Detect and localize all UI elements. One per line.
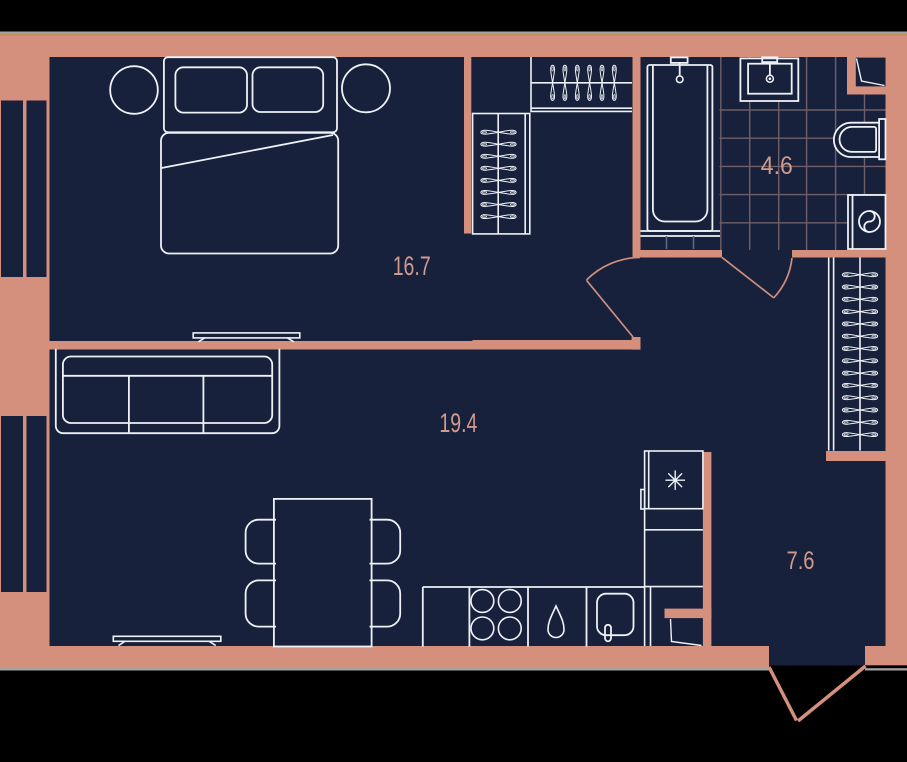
svg-text:16.7: 16.7 bbox=[393, 251, 431, 281]
svg-text:7.6: 7.6 bbox=[787, 547, 815, 575]
svg-text:4.6: 4.6 bbox=[761, 152, 793, 180]
svg-text:19.4: 19.4 bbox=[439, 408, 477, 438]
